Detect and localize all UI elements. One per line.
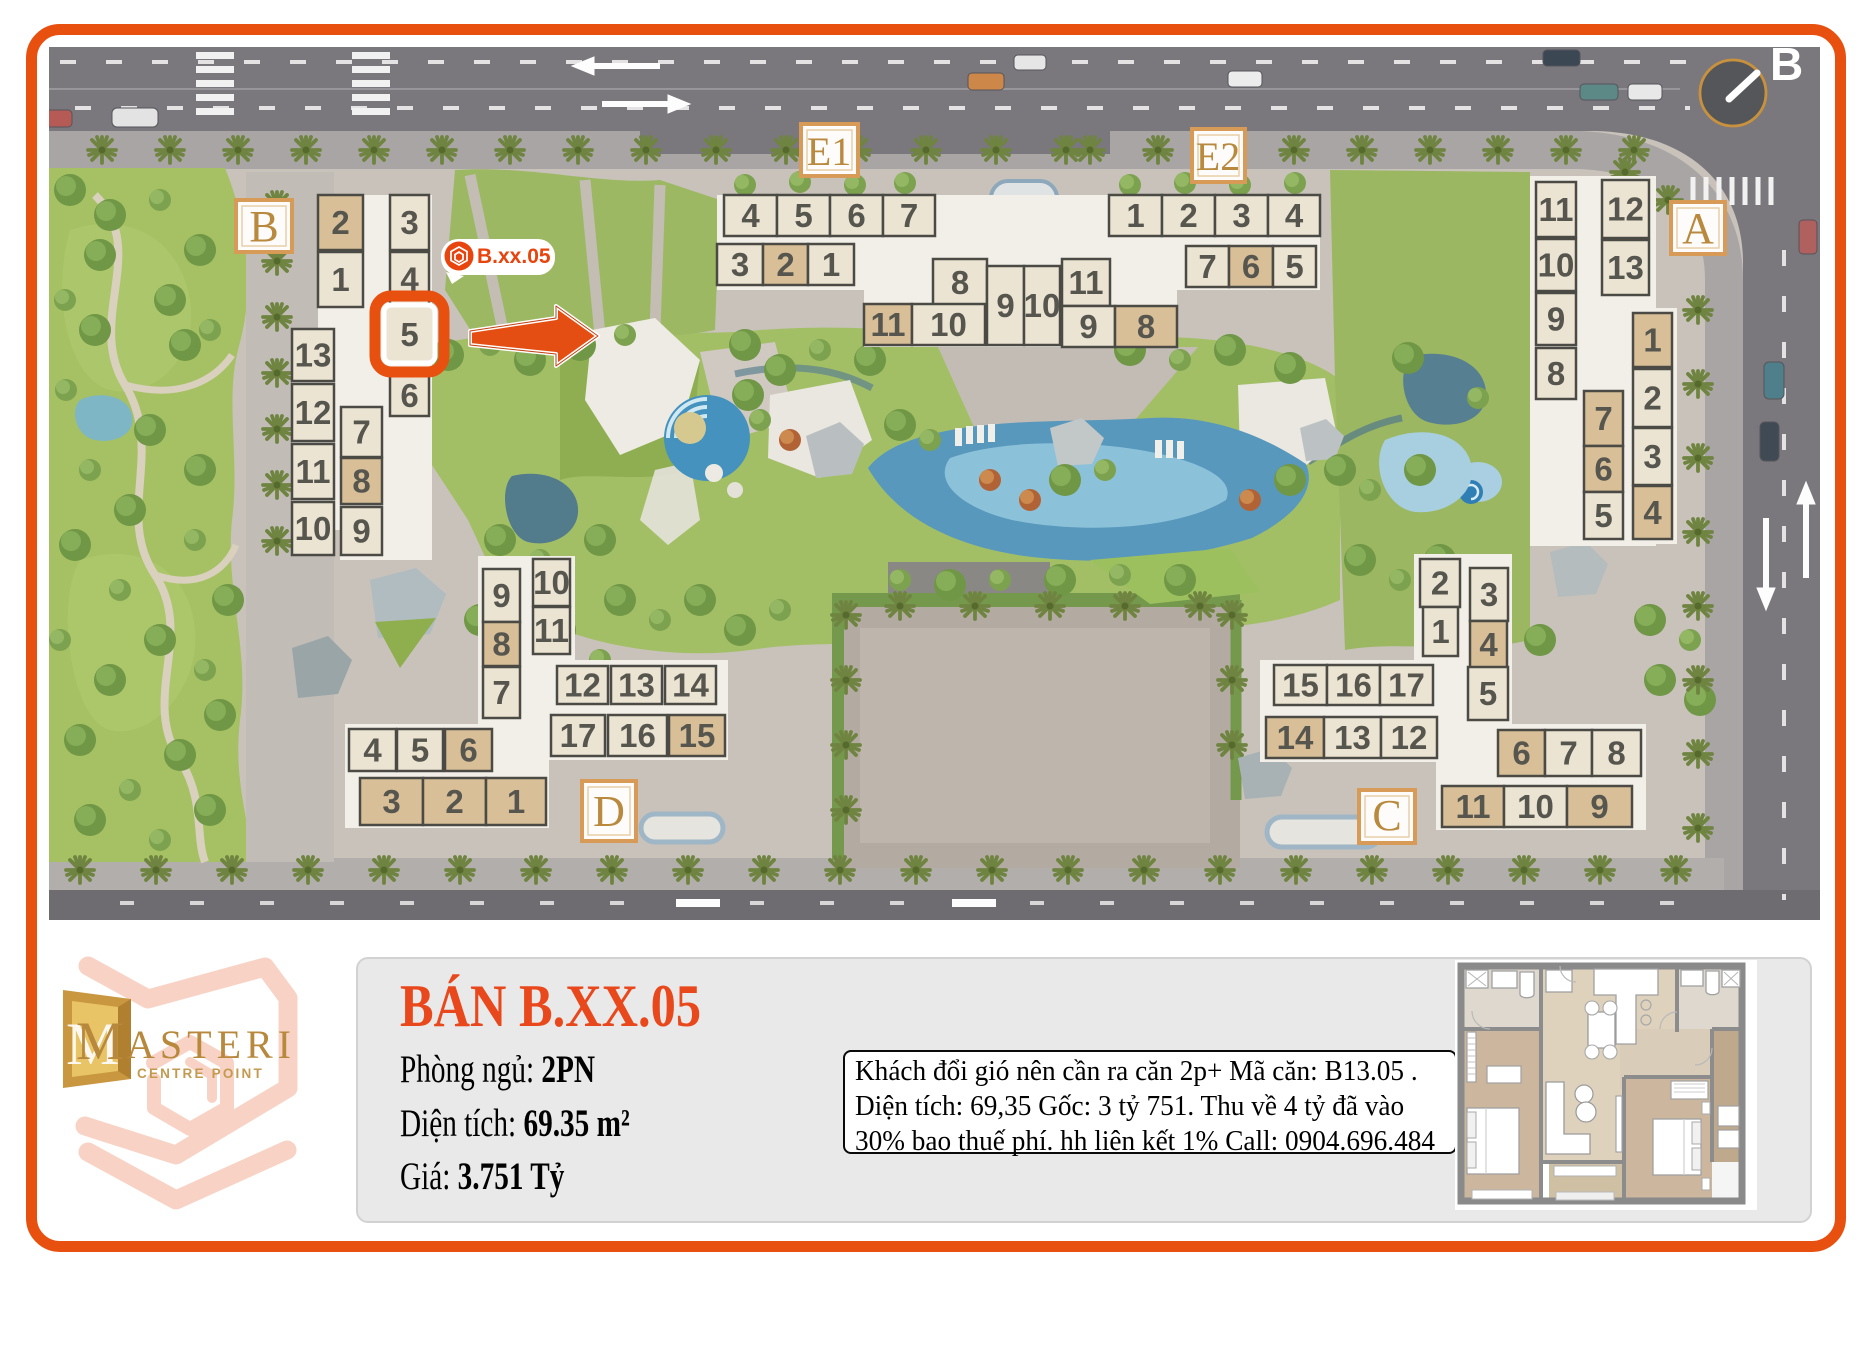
svg-text:2: 2 xyxy=(1179,197,1197,234)
svg-text:7: 7 xyxy=(1198,248,1216,285)
svg-text:6: 6 xyxy=(1242,248,1260,285)
svg-text:6: 6 xyxy=(400,377,418,414)
svg-text:15: 15 xyxy=(679,717,716,754)
svg-text:12: 12 xyxy=(295,394,332,431)
svg-text:2: 2 xyxy=(445,783,463,820)
svg-text:10: 10 xyxy=(295,510,332,547)
svg-text:2: 2 xyxy=(1431,565,1449,602)
svg-text:11: 11 xyxy=(1456,788,1491,825)
svg-text:3: 3 xyxy=(382,783,400,820)
svg-text:9: 9 xyxy=(1590,788,1608,825)
svg-text:1: 1 xyxy=(331,261,349,298)
svg-text:B: B xyxy=(1770,47,1803,90)
svg-text:7: 7 xyxy=(1594,400,1612,437)
svg-text:B: B xyxy=(249,202,278,251)
svg-text:11: 11 xyxy=(534,612,569,649)
svg-text:7: 7 xyxy=(352,414,370,451)
svg-text:A: A xyxy=(1682,204,1714,253)
svg-text:ASTERI: ASTERI xyxy=(126,1022,296,1067)
svg-text:C: C xyxy=(1372,791,1401,840)
svg-text:4: 4 xyxy=(363,732,382,769)
svg-text:12: 12 xyxy=(1607,191,1644,228)
svg-text:B.xx.05: B.xx.05 xyxy=(477,245,551,268)
svg-text:10: 10 xyxy=(1517,788,1554,825)
svg-text:5: 5 xyxy=(794,197,812,234)
svg-text:9: 9 xyxy=(352,513,370,550)
svg-text:11: 11 xyxy=(296,453,331,490)
svg-text:8: 8 xyxy=(1137,308,1155,345)
svg-text:5: 5 xyxy=(1479,675,1497,712)
svg-text:10: 10 xyxy=(1538,247,1575,284)
svg-text:6: 6 xyxy=(847,197,865,234)
svg-text:12: 12 xyxy=(564,667,601,704)
svg-text:10: 10 xyxy=(930,306,967,343)
svg-text:4: 4 xyxy=(741,197,760,234)
svg-text:9: 9 xyxy=(996,287,1014,324)
svg-text:17: 17 xyxy=(560,717,597,754)
svg-text:9: 9 xyxy=(1547,301,1565,338)
svg-text:13: 13 xyxy=(1607,249,1644,286)
svg-text:13: 13 xyxy=(295,337,332,374)
svg-text:CENTRE POINT: CENTRE POINT xyxy=(137,1066,264,1081)
svg-text:2: 2 xyxy=(1643,380,1661,417)
svg-text:6: 6 xyxy=(1594,451,1612,488)
svg-text:1: 1 xyxy=(507,783,525,820)
svg-text:6: 6 xyxy=(459,732,477,769)
svg-text:5: 5 xyxy=(1285,248,1303,285)
svg-text:14: 14 xyxy=(1277,719,1314,756)
svg-text:4: 4 xyxy=(1285,197,1304,234)
svg-text:2: 2 xyxy=(776,246,794,283)
svg-text:16: 16 xyxy=(619,717,656,754)
svg-text:5: 5 xyxy=(411,732,429,769)
svg-text:16: 16 xyxy=(1335,667,1372,704)
svg-text:E1: E1 xyxy=(807,129,851,174)
svg-text:8: 8 xyxy=(1547,355,1565,392)
svg-text:9: 9 xyxy=(1079,308,1097,345)
svg-text:10: 10 xyxy=(1024,287,1061,324)
svg-text:7: 7 xyxy=(900,197,918,234)
svg-text:11: 11 xyxy=(1069,264,1104,301)
svg-text:3: 3 xyxy=(1232,197,1250,234)
svg-text:2: 2 xyxy=(331,204,349,241)
svg-text:3: 3 xyxy=(400,204,418,241)
svg-text:1: 1 xyxy=(1643,322,1661,359)
svg-text:15: 15 xyxy=(1282,667,1319,704)
svg-text:11: 11 xyxy=(871,306,906,343)
svg-text:13: 13 xyxy=(1334,719,1371,756)
svg-text:8: 8 xyxy=(352,463,370,500)
svg-text:7: 7 xyxy=(492,674,510,711)
svg-text:5: 5 xyxy=(1594,497,1612,534)
svg-text:1: 1 xyxy=(1126,197,1144,234)
svg-text:4: 4 xyxy=(1479,626,1498,663)
svg-text:8: 8 xyxy=(492,626,510,663)
svg-text:5: 5 xyxy=(400,316,418,353)
svg-text:D: D xyxy=(593,787,625,836)
svg-text:7: 7 xyxy=(1559,735,1577,772)
svg-text:12: 12 xyxy=(1391,719,1428,756)
svg-text:4: 4 xyxy=(1643,494,1662,531)
svg-text:3: 3 xyxy=(731,246,749,283)
svg-text:1: 1 xyxy=(822,246,840,283)
svg-text:14: 14 xyxy=(672,667,709,704)
svg-text:10: 10 xyxy=(533,564,570,601)
svg-text:3: 3 xyxy=(1480,576,1498,613)
svg-text:8: 8 xyxy=(1607,735,1625,772)
svg-text:E2: E2 xyxy=(1196,134,1240,179)
svg-text:11: 11 xyxy=(1539,191,1574,228)
svg-text:6: 6 xyxy=(1512,735,1530,772)
svg-text:9: 9 xyxy=(492,577,510,614)
svg-text:1: 1 xyxy=(1431,613,1449,650)
svg-text:8: 8 xyxy=(951,264,969,301)
svg-text:3: 3 xyxy=(1643,438,1661,475)
svg-text:M: M xyxy=(76,1011,124,1071)
svg-text:13: 13 xyxy=(618,667,655,704)
svg-text:17: 17 xyxy=(1388,667,1425,704)
